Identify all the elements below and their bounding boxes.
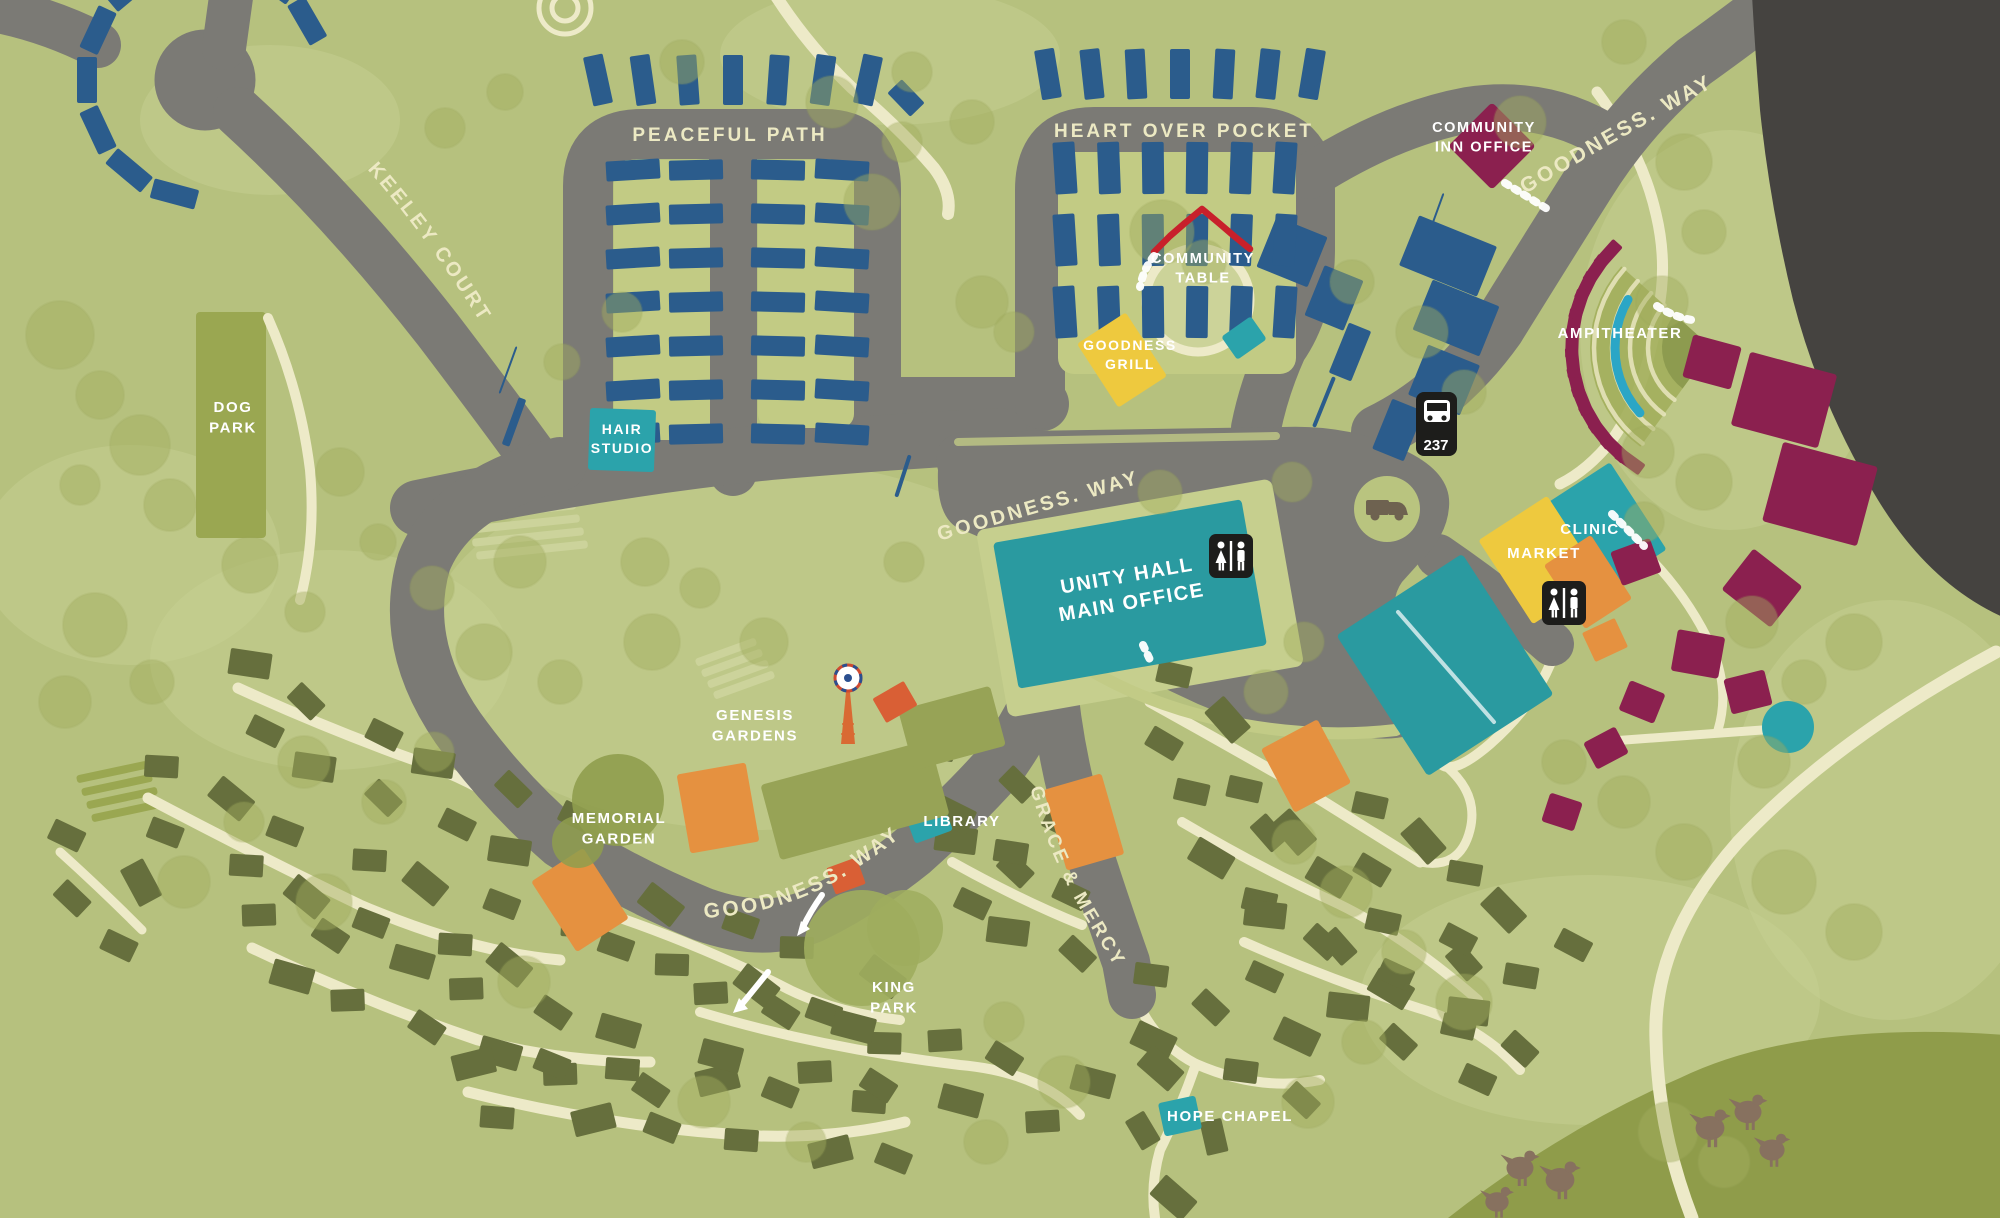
tree — [844, 174, 900, 230]
tree — [110, 415, 170, 475]
label-market: MARKET — [1507, 545, 1581, 562]
home — [751, 423, 805, 444]
home — [669, 203, 723, 224]
road-label-peaceful-path: PEACEFUL PATH — [632, 125, 827, 146]
house — [1025, 1110, 1060, 1134]
house — [1243, 899, 1288, 930]
road-label-heart-over-pocket: HEART OVER POCKET — [1054, 121, 1314, 142]
tree — [1676, 454, 1732, 510]
tree — [892, 52, 932, 92]
home — [77, 57, 97, 103]
label-clinic: CLINIC — [1560, 521, 1620, 538]
tree — [1320, 866, 1372, 918]
house — [479, 1105, 515, 1129]
home — [669, 159, 723, 180]
home — [1097, 142, 1121, 195]
house — [1133, 962, 1170, 988]
house — [144, 755, 179, 779]
home — [605, 378, 660, 401]
home — [1052, 213, 1077, 266]
tree — [1244, 670, 1288, 714]
house — [724, 1128, 760, 1152]
tree — [456, 624, 512, 680]
tree — [624, 614, 680, 670]
tree — [498, 956, 550, 1008]
house — [605, 1057, 641, 1081]
king-park-lawn — [867, 890, 943, 966]
home — [669, 291, 723, 312]
home — [1142, 142, 1165, 194]
street — [224, 0, 232, 48]
tree — [1382, 930, 1426, 974]
home — [1213, 48, 1236, 99]
home — [1186, 286, 1209, 338]
tree — [360, 524, 396, 560]
tree — [740, 618, 788, 666]
tree — [76, 371, 124, 419]
tree — [1826, 614, 1882, 670]
tree — [494, 536, 546, 588]
tree — [222, 537, 278, 593]
tree — [158, 856, 210, 908]
tree — [1826, 904, 1882, 960]
tree — [1752, 850, 1816, 914]
home — [814, 290, 869, 313]
home — [814, 422, 869, 445]
home — [751, 159, 805, 180]
tree — [1272, 820, 1316, 864]
house — [655, 953, 690, 976]
home — [1125, 48, 1148, 99]
home — [605, 246, 660, 269]
bus-route-number: 237 — [1423, 437, 1448, 454]
house — [449, 977, 484, 1000]
tree — [678, 1076, 730, 1128]
tree — [362, 780, 406, 824]
tree — [806, 76, 858, 128]
home — [1170, 49, 1190, 99]
house — [693, 981, 728, 1005]
home — [814, 246, 869, 269]
tree — [602, 292, 642, 332]
home — [605, 158, 660, 181]
tree — [285, 592, 325, 632]
tree — [39, 676, 91, 728]
tree — [1682, 210, 1726, 254]
home — [669, 247, 723, 268]
tree — [487, 74, 523, 110]
tree — [425, 108, 465, 148]
windmill-hub — [844, 674, 852, 682]
tree — [1396, 306, 1448, 358]
home — [751, 379, 805, 400]
tree — [1698, 1136, 1750, 1188]
tree — [1602, 20, 1646, 64]
tree — [882, 122, 922, 162]
home — [1272, 213, 1297, 266]
tree — [1738, 736, 1790, 788]
bus-windshield — [1427, 403, 1447, 411]
home — [1052, 285, 1077, 338]
tree — [1782, 660, 1826, 704]
house — [1223, 1058, 1260, 1084]
tree — [786, 1122, 826, 1162]
tree — [1138, 470, 1182, 514]
tree — [63, 593, 127, 657]
house — [438, 932, 473, 956]
tree — [538, 660, 582, 704]
home — [669, 335, 723, 356]
tree — [410, 566, 454, 610]
tree — [964, 1120, 1008, 1164]
home — [1186, 142, 1209, 194]
tree — [994, 312, 1034, 352]
tree — [1656, 824, 1712, 880]
home — [814, 334, 869, 357]
home — [751, 203, 805, 224]
house — [1326, 991, 1371, 1022]
tree — [414, 732, 454, 772]
home — [1272, 141, 1297, 194]
home — [1272, 285, 1297, 338]
label-ampitheater: AMPITHEATER — [1558, 325, 1683, 342]
tree — [1038, 1056, 1090, 1108]
tree — [1656, 134, 1712, 190]
home — [605, 334, 660, 357]
tree — [26, 301, 94, 369]
home — [1142, 286, 1165, 338]
restroom-icon — [1542, 581, 1586, 625]
community-map: PEACEFUL PATH HEART OVER POCKET KEELEY C… — [0, 0, 2000, 1218]
tree — [1272, 462, 1312, 502]
house — [927, 1028, 962, 1052]
home — [751, 291, 805, 312]
home — [669, 423, 723, 444]
home — [751, 335, 805, 356]
tree — [544, 344, 580, 380]
map-canvas: PEACEFUL PATH HEART OVER POCKET KEELEY C… — [0, 0, 2000, 1218]
tree — [278, 736, 330, 788]
tree — [884, 542, 924, 582]
tree — [1726, 596, 1778, 648]
house — [330, 989, 365, 1012]
tree — [1330, 260, 1374, 304]
home — [751, 247, 805, 268]
memorial-building — [677, 763, 760, 854]
house — [797, 1060, 832, 1084]
tree — [224, 802, 264, 842]
home — [814, 378, 869, 401]
house — [242, 903, 277, 926]
tree — [950, 100, 994, 144]
label-library: LIBRARY — [923, 813, 1000, 830]
tree — [60, 465, 100, 505]
home — [669, 379, 723, 400]
house — [985, 916, 1030, 947]
tree — [621, 538, 669, 586]
tree — [1284, 622, 1324, 662]
tree — [1342, 1020, 1386, 1064]
bus-wheel — [1441, 415, 1446, 420]
tree — [1436, 974, 1492, 1030]
tree — [984, 1002, 1024, 1042]
tree — [296, 874, 352, 930]
house — [352, 848, 387, 872]
home — [1097, 214, 1121, 267]
restroom-icon — [1209, 534, 1253, 578]
home — [766, 54, 790, 105]
house — [229, 854, 264, 878]
home — [1229, 142, 1253, 195]
home — [605, 202, 660, 225]
tree — [1542, 740, 1586, 784]
home — [723, 55, 743, 105]
home — [1052, 141, 1077, 194]
tree — [1622, 426, 1674, 478]
tree — [316, 448, 364, 496]
tree — [680, 568, 720, 608]
tree — [130, 660, 174, 704]
label-hope-chapel: HOPE CHAPEL — [1167, 1108, 1293, 1125]
tree — [660, 40, 704, 84]
delivery-truck-icon — [1354, 476, 1420, 542]
bus-wheel — [1427, 415, 1432, 420]
maroon-building — [1671, 629, 1726, 679]
tree — [1638, 1102, 1698, 1162]
tree — [1598, 776, 1650, 828]
tree — [144, 479, 196, 531]
